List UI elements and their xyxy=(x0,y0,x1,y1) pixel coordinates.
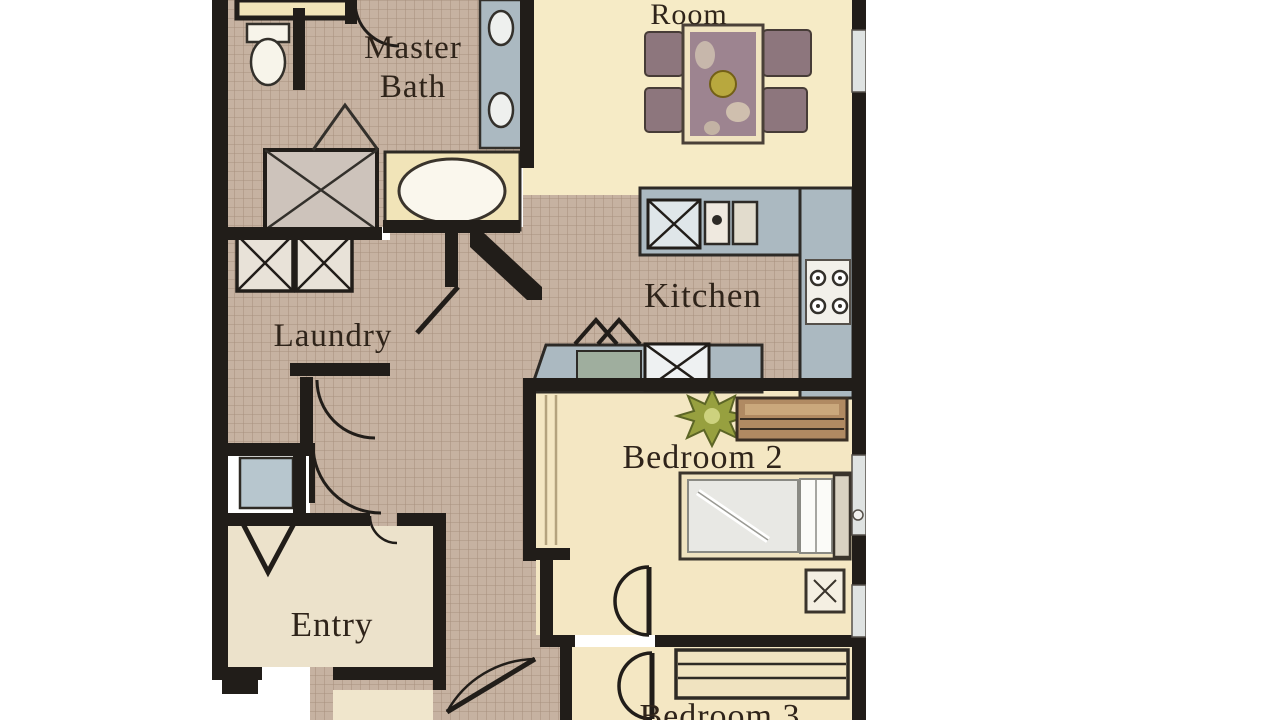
entry-floor xyxy=(228,526,433,667)
wall-laundry-bottom xyxy=(290,363,390,376)
floor-plan-page: Room Master Bath Kitchen Laundry Bedroom… xyxy=(0,0,1280,720)
centerpiece-icon xyxy=(710,71,736,97)
wall-hall-bedroom2 xyxy=(540,560,553,647)
window-icon xyxy=(852,455,866,535)
wall-bedroom23-right xyxy=(655,635,852,647)
wall-closet-right xyxy=(293,443,306,523)
wall-bath-dining xyxy=(520,0,534,168)
master-bath-label-line2: Bath xyxy=(380,69,446,105)
wall-bath-bottom-right xyxy=(383,220,520,233)
laundry-fixtures xyxy=(237,235,352,291)
wall-closet-bottom xyxy=(523,548,570,560)
toilet-icon xyxy=(247,24,289,85)
kitchen-sink-icon xyxy=(648,200,700,248)
dryer-icon xyxy=(296,235,352,291)
wall-bath-bottom-left xyxy=(228,227,382,240)
dining-chair-icon xyxy=(763,88,807,132)
wall-bedroom23-left xyxy=(540,635,575,647)
window-icon xyxy=(852,585,866,637)
porch-floor xyxy=(333,690,433,720)
dining-chair-icon xyxy=(645,32,683,76)
wall-laundry-right xyxy=(445,232,458,287)
bed-icon xyxy=(680,473,850,559)
dresser-icon xyxy=(737,398,847,440)
wall-bedroom2-left xyxy=(523,391,536,561)
cooktop-icon xyxy=(806,260,850,324)
master-bath-label-line1: Master xyxy=(364,30,462,66)
dining-chair-icon xyxy=(645,88,683,132)
wall-entry-bottom-right xyxy=(333,667,446,680)
door-leaf xyxy=(309,443,315,503)
entry-step xyxy=(222,680,258,694)
bathtub-icon xyxy=(385,152,520,230)
wall-bedroom3-left xyxy=(560,647,572,720)
kitchen-label: Kitchen xyxy=(644,276,762,315)
bed-icon xyxy=(676,650,848,698)
wall-bedroom2-top xyxy=(523,378,852,391)
washer-icon xyxy=(237,235,293,291)
dining-table-icon xyxy=(683,25,763,143)
toilet-partition-wall xyxy=(293,8,305,90)
bedroom3-furniture xyxy=(676,650,848,698)
wall-entry-bottom-left xyxy=(212,667,262,680)
window-latch-icon xyxy=(853,510,863,520)
window-icon xyxy=(852,30,866,92)
laundry-label: Laundry xyxy=(274,318,393,354)
headboard-icon xyxy=(834,475,850,557)
dining-chair-icon xyxy=(763,30,811,76)
wall-left-outer xyxy=(212,0,228,680)
closet-glass-panel xyxy=(240,458,293,508)
wall-entry-right xyxy=(433,513,446,690)
bedroom2-label: Bedroom 2 xyxy=(622,439,783,476)
nightstand-icon xyxy=(806,570,844,612)
bedroom3-label: Bedroom 3 xyxy=(639,698,800,720)
double-vanity-icon xyxy=(480,0,523,148)
entry-fixtures xyxy=(240,458,293,508)
entry-label: Entry xyxy=(291,605,374,644)
dining-room-label: Room xyxy=(650,0,727,31)
wall-hall-left xyxy=(300,377,313,447)
floor-plan: Room Master Bath Kitchen Laundry Bedroom… xyxy=(212,0,866,720)
